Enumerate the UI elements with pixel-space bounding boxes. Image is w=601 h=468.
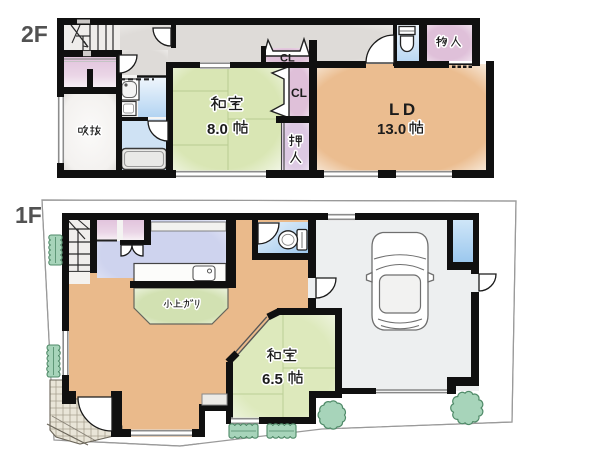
svg-text:6.5: 6.5 bbox=[262, 371, 283, 388]
svg-text:LD: LD bbox=[389, 100, 419, 119]
svg-text:CL: CL bbox=[280, 53, 295, 65]
svg-text:1F: 1F bbox=[15, 202, 42, 228]
svg-text:13.0: 13.0 bbox=[377, 121, 406, 138]
svg-text:2F: 2F bbox=[21, 21, 48, 47]
svg-text:CL: CL bbox=[291, 86, 307, 100]
svg-text:8.0: 8.0 bbox=[207, 121, 228, 138]
